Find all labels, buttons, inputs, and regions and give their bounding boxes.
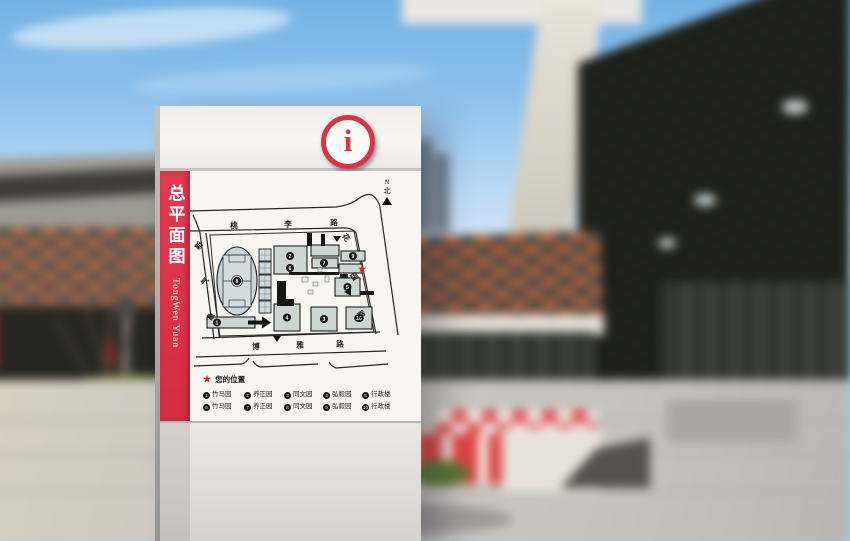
legend-number: 2 (244, 392, 251, 399)
svg-text:9: 9 (352, 254, 355, 260)
svg-text:6: 6 (289, 266, 292, 272)
sign-title-cn: 总平面图 (163, 184, 188, 268)
paver-joint (0, 490, 850, 492)
sign-body: 总平面图 TongWen Yuan (160, 171, 421, 421)
map-legend: ★ 您的位置 1竹马园 2养正园 3同文园 4弘毅园 5行政楼 6竹马园 7养正… (190, 371, 421, 421)
legend-label: 弘毅园 (332, 391, 352, 398)
site-map-panel: 8 (190, 171, 421, 421)
legend-row: 6竹马园 7养正园 8同文园 9弘毅园 10行政楼 (190, 400, 421, 410)
ceiling-light (782, 100, 808, 114)
south-gate-marker (273, 336, 281, 342)
legend-number: 10 (362, 404, 369, 411)
legend-label: 同文园 (293, 391, 313, 398)
sign-lower-panel (160, 421, 421, 541)
info-glyph: i (344, 125, 353, 156)
svg-text:路: 路 (336, 339, 344, 349)
svg-text:花: 花 (340, 231, 353, 243)
sign-title-en: TongWen Yuan (170, 278, 180, 348)
legend-number: 4 (323, 392, 330, 399)
svg-text:桃: 桃 (230, 220, 238, 230)
north-arrow: N 北 (382, 180, 392, 205)
legend-label: 行政楼 (371, 391, 391, 398)
legend-number: 9 (323, 404, 330, 411)
legend-number: 7 (244, 404, 251, 411)
star-icon: ★ (203, 374, 211, 384)
distant-tower (434, 154, 449, 232)
legend-number: 6 (203, 404, 210, 411)
svg-text:北: 北 (384, 187, 391, 195)
legend-title-text: 您的位置 (215, 375, 245, 384)
svg-text:4: 4 (286, 316, 289, 322)
background-photo (0, 0, 850, 541)
svg-text:雅: 雅 (296, 340, 304, 350)
sign-lower-side-band (160, 423, 190, 541)
photo-scene: i 总平面图 TongWen Yuan (0, 0, 850, 541)
svg-text:7: 7 (323, 261, 326, 267)
svg-text:1: 1 (216, 321, 219, 327)
svg-text:5: 5 (346, 285, 349, 291)
svg-text:新: 新 (192, 239, 205, 251)
svg-text:路: 路 (330, 217, 338, 227)
svg-text:2: 2 (289, 254, 292, 260)
concrete-bench (667, 400, 797, 442)
legend-label: 竹马园 (212, 403, 232, 410)
legend-number: 8 (284, 404, 291, 411)
north-gate-marker (333, 236, 341, 242)
ceiling-light (658, 238, 676, 248)
sport-courts (259, 249, 271, 313)
right-building-brick-wall (396, 230, 604, 322)
svg-text:N: N (385, 180, 389, 186)
legend-number: 5 (362, 392, 369, 399)
svg-text:气: 气 (198, 275, 211, 288)
legend-label: 竹马园 (212, 391, 232, 398)
building-number: 8 (236, 279, 239, 285)
legend-label: 养正园 (253, 403, 273, 410)
ceiling-light (694, 194, 716, 206)
legend-label: 养正园 (253, 391, 273, 398)
legend-number: 3 (284, 392, 291, 399)
legend-label: 行政楼 (371, 403, 391, 410)
site-map: 8 (190, 171, 421, 371)
side-title-strip: 总平面图 TongWen Yuan (160, 171, 190, 421)
svg-text:3: 3 (323, 317, 326, 323)
svg-text:博: 博 (252, 341, 260, 351)
legend-label: 同文园 (293, 403, 313, 410)
signpost-plate (117, 298, 134, 318)
legend-title: ★ 您的位置 (203, 374, 245, 385)
legend-number: 1 (203, 392, 210, 399)
legend-label: 弘毅园 (332, 403, 352, 410)
stadium: 8 (217, 247, 257, 315)
info-icon: i (321, 115, 375, 169)
wayfinding-totem-sign: i 总平面图 TongWen Yuan (160, 106, 421, 541)
svg-text:李: 李 (283, 219, 292, 229)
sign-header: i (160, 106, 421, 168)
legend-row: 1竹马园 2养正园 3同文园 4弘毅园 5行政楼 (190, 388, 421, 398)
right-building-fascia (402, 0, 642, 24)
